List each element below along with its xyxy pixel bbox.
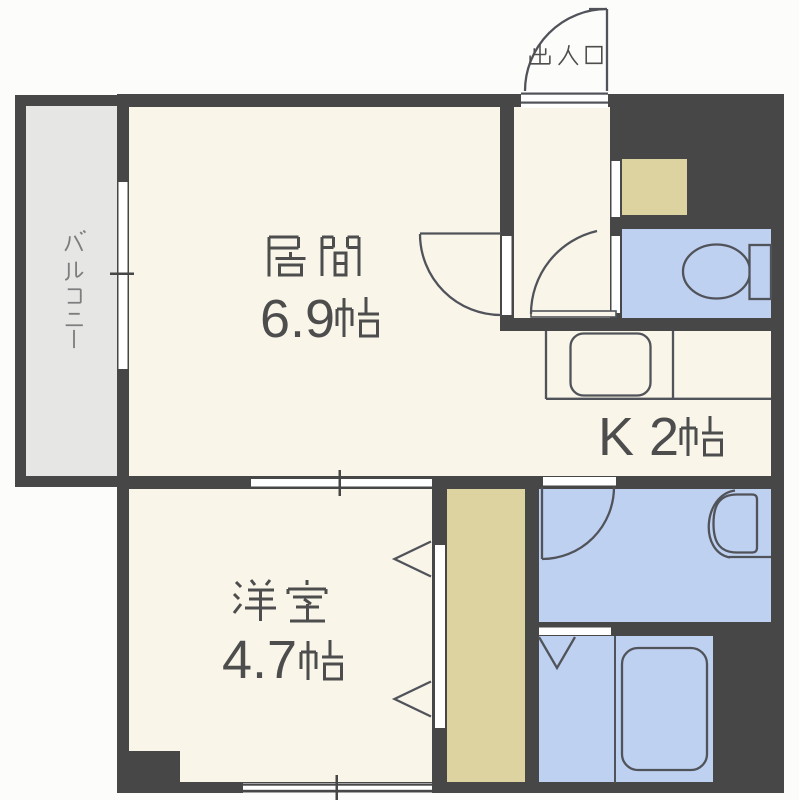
svg-text:4.7: 4.7: [222, 630, 297, 690]
svg-text:K 2: K 2: [598, 407, 679, 467]
svg-text:6.9: 6.9: [260, 289, 335, 349]
